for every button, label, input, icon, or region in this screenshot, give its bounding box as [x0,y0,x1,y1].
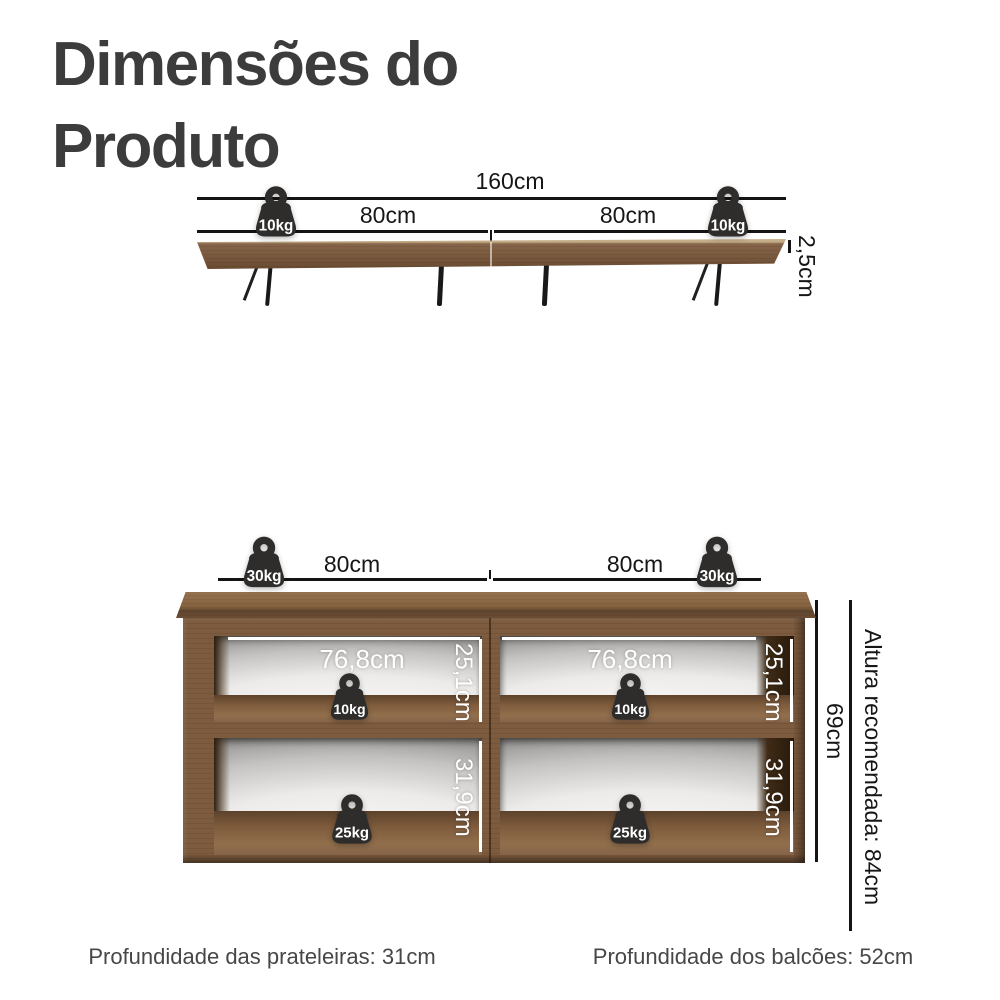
shelf-left-span-line [197,230,488,233]
shelf-left-span-label: 80cm [328,202,448,229]
shelves-depth-label: Profundidade das prateleiras: 31cm [52,944,472,970]
cabinet-bottom-edge-shade [183,855,805,863]
recommended-height-line [849,600,852,931]
cabinet-left-top-weight-badge: 30kg [236,536,292,591]
kettlebell-weight-icon: 25kg [602,794,658,847]
cabinet-left-top-weight-label: 30kg [247,568,282,585]
top-left-weight-label: 10kg [333,701,365,717]
cabinet-right-span-label: 80cm [575,551,695,578]
cabinet-right-edge-shade [794,618,805,863]
cabinet-body: 76,8cm 25,1cm 76,8cm 25,1cm 31,9cm 31,9c… [183,618,805,863]
top-right-height-line [790,639,793,722]
top-right-height-label: 25,1cm [761,640,787,724]
bottom-left-height-label: 31,9cm [451,741,477,853]
shelf-bracket-icon [423,262,453,308]
top-right-weight-badge: 10kg [603,673,658,723]
bottom-left-height-line [479,741,482,852]
top-right-width-line [502,637,756,640]
shelf-thickness-tick [788,240,791,253]
kettlebell-weight-icon: 30kg [236,536,292,591]
recommended-height-label: Altura recomendada: 84cm [856,603,886,931]
top-left-height-line [479,639,482,722]
shelf-span-divider-tick [490,230,492,241]
bottom-right-height-line [790,741,793,852]
top-left-width-line [228,637,480,640]
shelf-bracket-icon [701,262,731,308]
kettlebell-weight-icon: 10kg [700,186,756,240]
cabinet-left-span-label: 80cm [292,551,412,578]
kettlebell-weight-icon: 30kg [689,536,745,591]
kettlebell-weight-icon: 10kg [248,186,304,240]
page-title: Dimensões do Produto [52,24,572,188]
kettlebell-weight-icon: 10kg [322,673,377,723]
cabinets-depth-label: Profundidade dos balcões: 52cm [543,944,963,970]
cabinet-right-top-weight-badge: 30kg [689,536,745,591]
cabinet-center-seam [489,618,491,863]
kettlebell-weight-icon: 25kg [324,794,380,847]
page-title-line1: Dimensões do [52,24,572,106]
shelf-right-span-label: 80cm [568,202,688,229]
top-left-weight-badge: 10kg [322,673,377,723]
cabinet-span-divider-tick [489,570,491,579]
bottom-right-weight-label: 25kg [613,825,647,842]
bottom-left-weight-label: 25kg [335,825,369,842]
cabinet-height-line [815,600,818,862]
shelf-left-weight-label: 10kg [259,217,294,234]
cabinet-height-label: 69cm [821,686,848,776]
bottom-right-height-label: 31,9cm [761,741,787,853]
wall-shelf-board [197,239,786,269]
shelf-total-width-label: 160cm [445,168,575,195]
cabinet-top-slab [176,592,816,618]
bottom-right-weight-badge: 25kg [602,794,658,847]
bottom-left-weight-badge: 25kg [324,794,380,847]
product-dimensions-diagram: Dimensões do Produto 160cm 80cm 80cm 10k… [0,0,1000,1000]
top-left-width-label: 76,8cm [298,644,426,675]
shelf-right-weight-badge: 10kg [700,186,756,240]
shelf-right-weight-label: 10kg [711,217,746,234]
cabinet-right-top-weight-label: 30kg [700,568,735,585]
top-left-height-label: 25,1cm [451,640,477,724]
shelf-left-weight-badge: 10kg [248,186,304,240]
shelf-thickness-label: 2,5cm [792,211,820,321]
shelf-center-seam [490,242,492,267]
shelf-bracket-icon [252,262,282,308]
top-right-width-label: 76,8cm [566,644,694,675]
shelf-bracket-icon [528,262,558,308]
top-right-weight-label: 10kg [614,701,646,717]
kettlebell-weight-icon: 10kg [603,673,658,723]
